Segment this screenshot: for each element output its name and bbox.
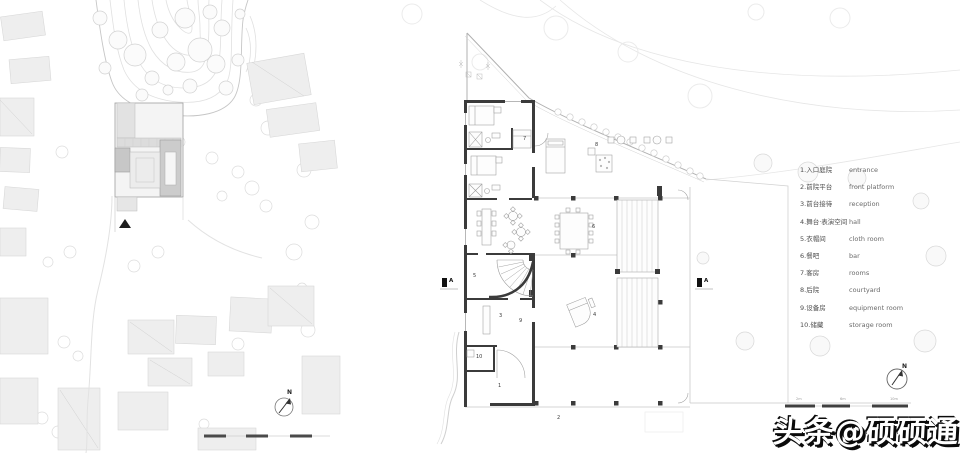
stair	[489, 260, 533, 297]
legend-item: 9.设备房equipment room	[800, 304, 950, 321]
room-label-storage: 10	[476, 355, 482, 360]
legend-zh: 7.客房	[800, 269, 849, 277]
garden-marks	[459, 60, 490, 79]
legend-item: 1.入口庭院entrance	[800, 166, 950, 183]
section-a-left: A	[449, 279, 453, 285]
legend-item: 2.前院平台front platform	[800, 183, 950, 200]
legend-en: storage room	[849, 321, 893, 329]
tiered-seating	[615, 200, 660, 347]
entrance-arrow	[119, 219, 131, 228]
room-label-entrance: 1	[498, 384, 501, 389]
north-label-left: N	[287, 390, 292, 396]
scale-label-10m: 10m	[890, 398, 898, 402]
hill-trees	[93, 5, 245, 101]
legend-item: 6.餐吧bar	[800, 252, 950, 269]
room-label-equipment: 9	[519, 319, 522, 324]
legend-en: courtyard	[849, 286, 880, 294]
legend-zh: 6.餐吧	[800, 252, 849, 260]
north-label-right: N	[902, 364, 907, 370]
room-legend: 1.入口庭院entrance 2.前院平台front platform 3.前台…	[800, 166, 950, 338]
legend-en: reception	[849, 200, 880, 208]
legend-zh: 5.衣帽间	[800, 235, 849, 243]
scale-bar-left	[204, 435, 330, 438]
legend-item: 7.客房rooms	[800, 269, 950, 286]
legend-item: 4.舞台·表演空间hall	[800, 218, 950, 235]
section-a-right: A	[704, 279, 708, 285]
stream-path	[437, 332, 459, 444]
north-compass-right	[887, 369, 907, 389]
scale-label-2m: 2m	[796, 398, 802, 402]
scale-bar-right	[785, 405, 908, 408]
hedge-trees	[555, 109, 703, 179]
legend-zh: 9.设备房	[800, 304, 849, 312]
legend-zh: 2.前院平台	[800, 183, 849, 191]
legend-zh: 1.入口庭院	[800, 166, 849, 174]
site-plan-graphics	[0, 0, 340, 453]
legend-zh: 10.储藏	[800, 321, 849, 329]
room-label-front-platform: 2	[557, 416, 560, 421]
legend-en: entrance	[849, 166, 878, 174]
front-steps	[645, 412, 683, 432]
legend-zh: 8.后院	[800, 286, 849, 294]
context-buildings	[0, 11, 340, 450]
section-markers	[440, 278, 713, 289]
legend-item: 3.前台接待reception	[800, 200, 950, 217]
legend-item: 8.后院courtyard	[800, 286, 950, 303]
faint-trees-top	[402, 4, 850, 108]
room-label-bar: 6	[592, 225, 595, 230]
room-label-reception: 3	[499, 314, 502, 319]
legend-item: 10.储藏storage room	[800, 321, 950, 338]
room-label-hall: 4	[593, 313, 596, 318]
legend-zh: 3.前台接待	[800, 200, 849, 208]
watermark-text: 头条@硕硕通	[772, 416, 960, 450]
subject-building	[115, 103, 183, 232]
hall-beams	[535, 198, 690, 347]
legend-en: front platform	[849, 183, 894, 191]
legend-en: bar	[849, 252, 860, 260]
room-label-cloth-room: 5	[473, 274, 476, 279]
legend-en: cloth room	[849, 235, 884, 243]
legend-en: hall	[849, 218, 861, 226]
legend-en: rooms	[849, 269, 869, 277]
legend-zh: 4.舞台·表演空间	[800, 218, 849, 226]
legend-item: 5.衣帽间cloth room	[800, 235, 950, 252]
architectural-drawing-page: 1 2 3 4 5 6 7 8 9 10 N N A A 2m 6m 10m 1…	[0, 0, 960, 453]
room-label-courtyard: 8	[595, 143, 598, 148]
north-compass-left	[275, 398, 293, 416]
scale-label-6m: 6m	[840, 398, 846, 402]
legend-en: equipment room	[849, 304, 903, 312]
room-label-rooms: 7	[523, 137, 526, 142]
